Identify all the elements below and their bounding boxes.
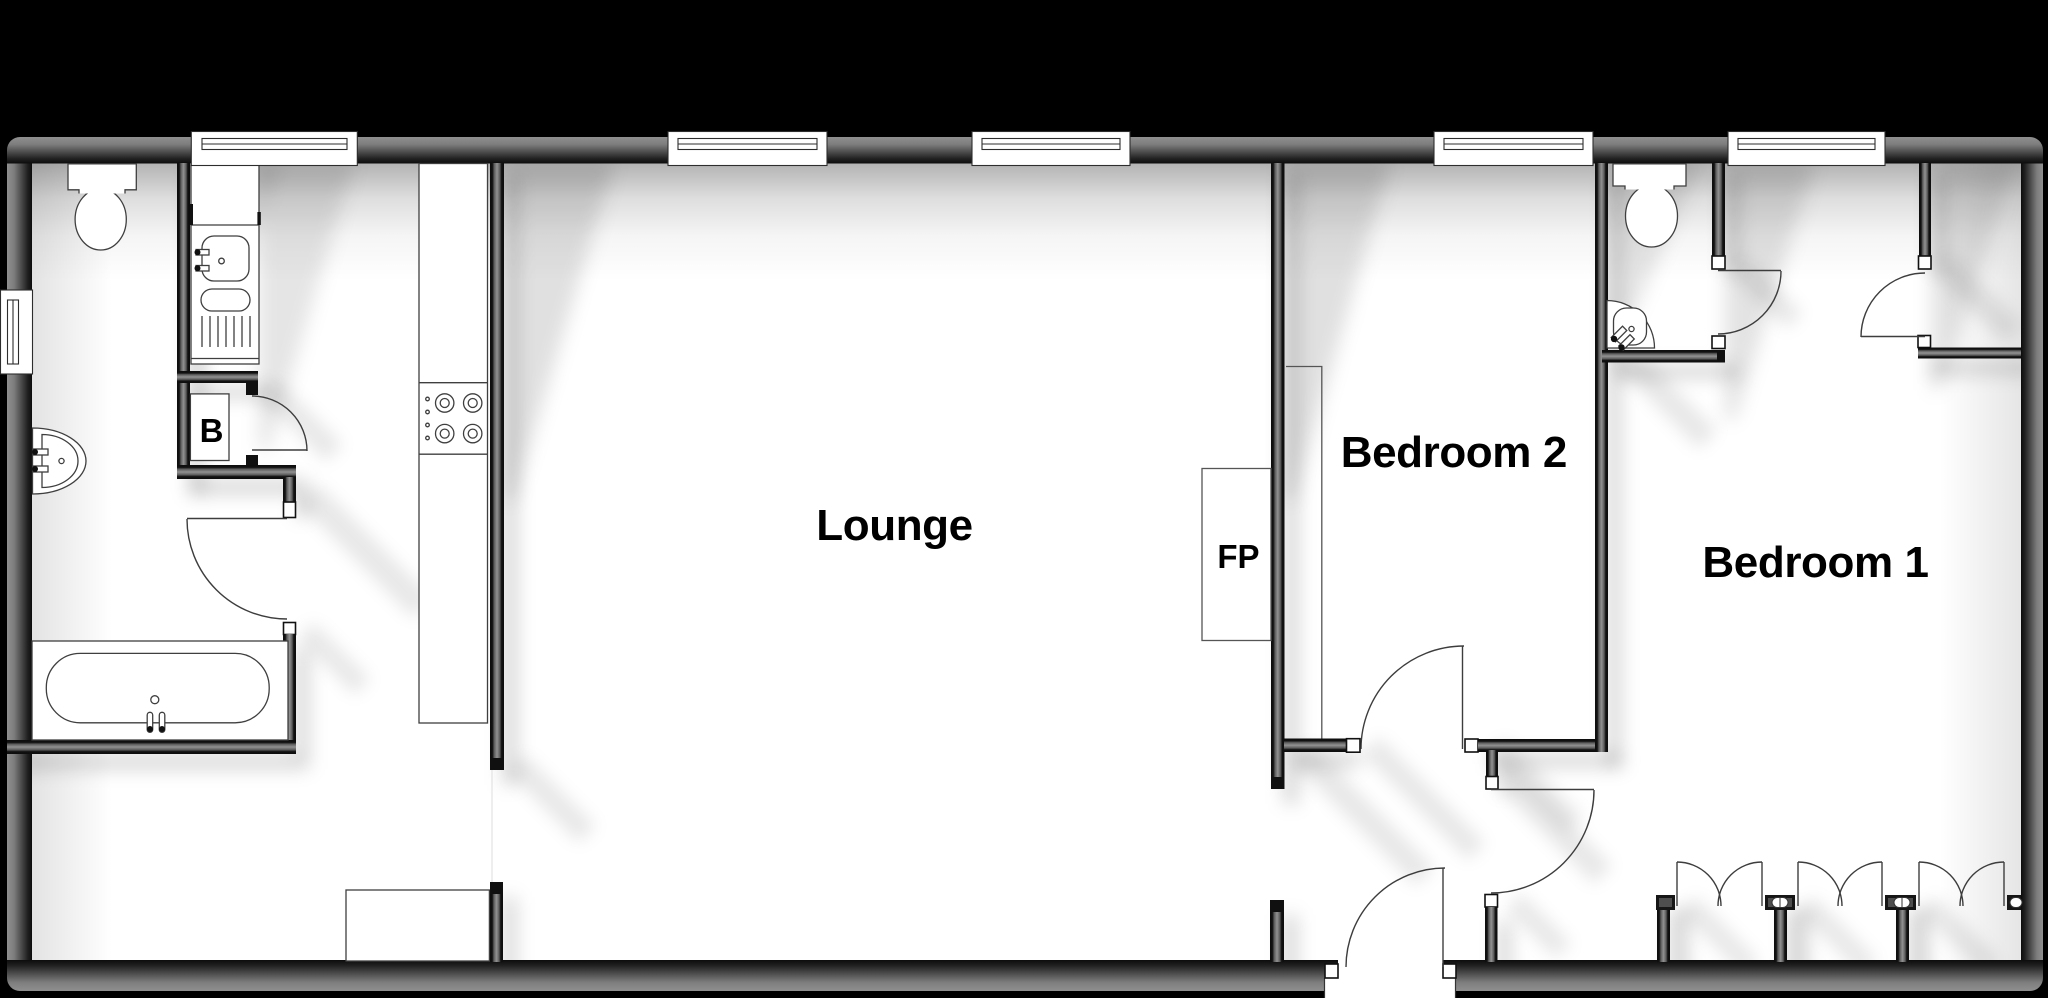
svg-text:Bedroom 2: Bedroom 2 (1341, 428, 1567, 477)
svg-text:Bedroom 1: Bedroom 1 (1702, 538, 1928, 587)
svg-text:B: B (200, 412, 224, 449)
svg-text:FP: FP (1217, 538, 1259, 575)
svg-text:Lounge: Lounge (816, 501, 972, 550)
